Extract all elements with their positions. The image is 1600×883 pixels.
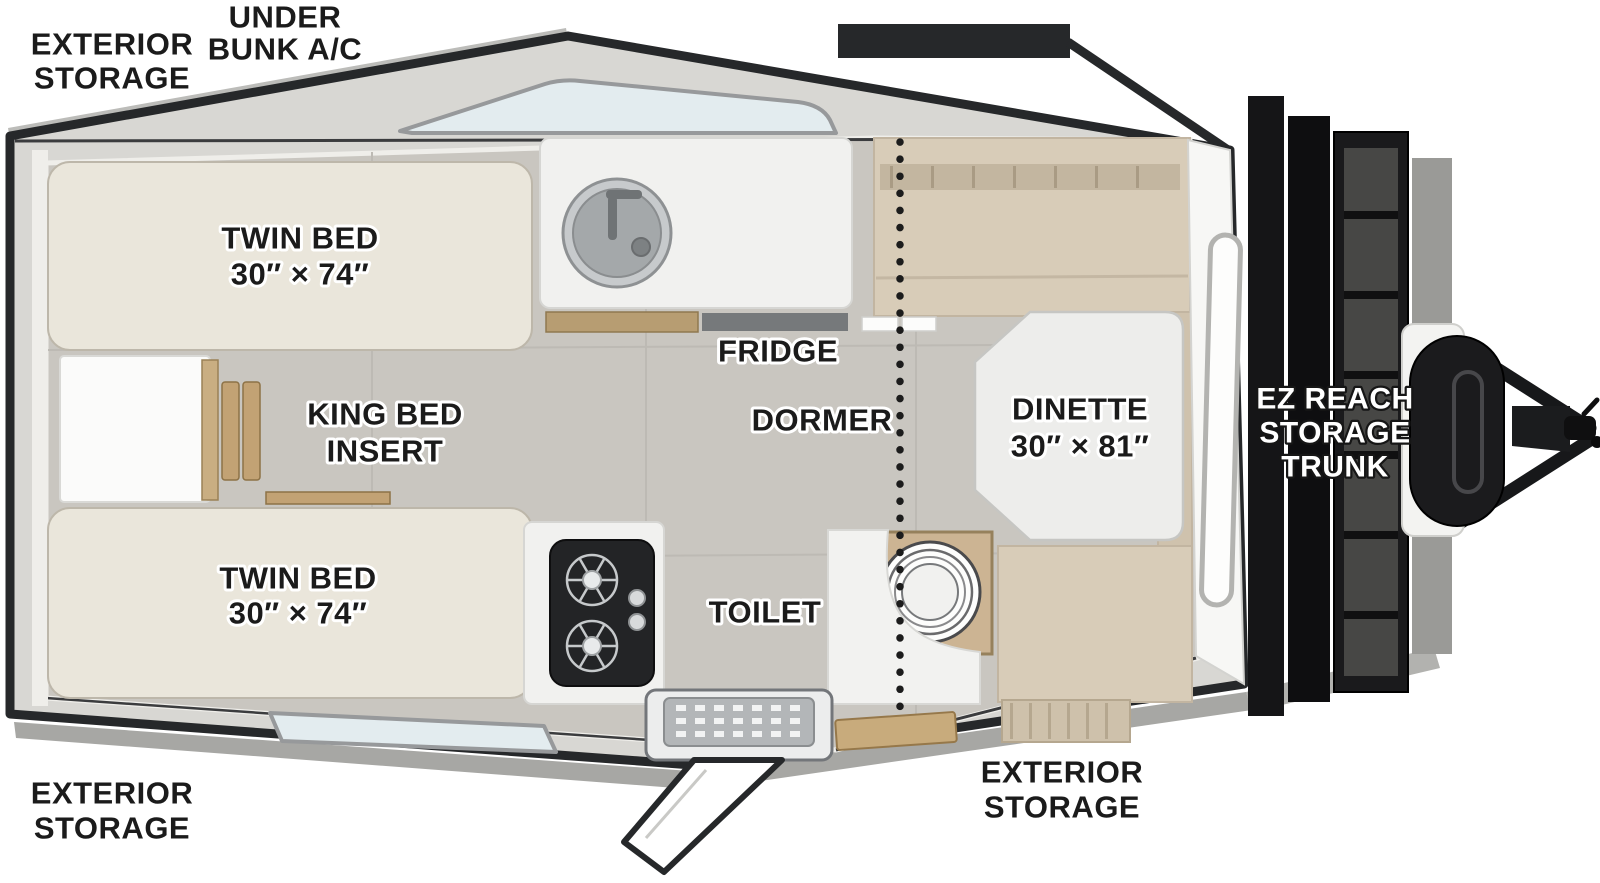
label-twin-bed-top-size: 30″ × 74″ [231,257,370,292]
label-twin-bed-top: TWIN BED [221,221,378,256]
dinette-footrest [1002,700,1130,742]
label-exterior-storage-door-side: EXTERIOR [981,755,1143,790]
label-fridge: FRIDGE [718,334,838,369]
wardrobe-cabinet [60,356,210,502]
bench-vent-band [880,164,1180,190]
label-king-bed-insert: KING BED [307,397,463,432]
sink [563,179,671,287]
label-exterior-storage-door-side: STORAGE [984,790,1140,825]
label-exterior-storage-bottom-left: EXTERIOR [31,776,193,811]
label-under-bunk-ac: BUNK A/C [208,32,362,67]
king-insert-wood-rail [202,360,218,500]
tongue-assembly [1402,324,1600,536]
front-wall-window-outline [1201,235,1241,606]
entry-step [646,690,832,760]
dormer-roof-edge [838,24,1070,58]
label-exterior-storage-top: EXTERIOR [31,27,193,62]
bench-seam [876,276,1188,278]
label-exterior-storage-top: STORAGE [34,61,190,96]
hitch-latch [1584,400,1597,414]
faucet-spout-icon [606,190,642,199]
toilet-area [828,530,992,704]
label-toilet: TOILET [709,595,822,630]
label-twin-bed-bottom: TWIN BED [219,561,376,596]
label-exterior-storage-bottom-left: STORAGE [34,811,190,846]
propane-tank [1410,336,1504,526]
floorplan-canvas: EXTERIOR STORAGE UNDER BUNK A/C TWIN BED… [0,0,1600,883]
king-insert-slat [243,382,260,480]
cooktop [550,540,654,686]
dinette-bench-bottom [998,546,1192,702]
cooktop-knob-icon [629,614,645,630]
entry [624,690,957,872]
label-dormer: DORMER [752,403,893,438]
faucet-icon [608,196,617,240]
hitch-plate [1512,406,1570,452]
hitch-coupler [1564,416,1596,440]
label-ez-reach-trunk: EZ REACH [1256,383,1413,416]
cooktop-knob-icon [629,590,645,606]
counter-wood-trim [546,312,698,332]
fridge-top-panel [702,313,848,331]
label-king-bed-insert: INSERT [327,434,444,469]
sink-drain [632,238,650,256]
label-twin-bed-bottom-size: 30″ × 74″ [229,596,368,631]
king-insert-board [266,492,390,504]
label-dinette-size: 30″ × 81″ [1011,429,1150,464]
king-insert-slat [222,382,239,480]
floor-control-box [862,317,898,331]
label-ez-reach-trunk: STORAGE [1259,417,1410,450]
label-ez-reach-trunk: TRUNK [1281,451,1389,484]
label-under-bunk-ac: UNDER [229,0,342,35]
left-inner-wall [32,150,48,706]
floor-control-box [902,317,936,331]
label-dinette: DINETTE [1012,392,1148,427]
